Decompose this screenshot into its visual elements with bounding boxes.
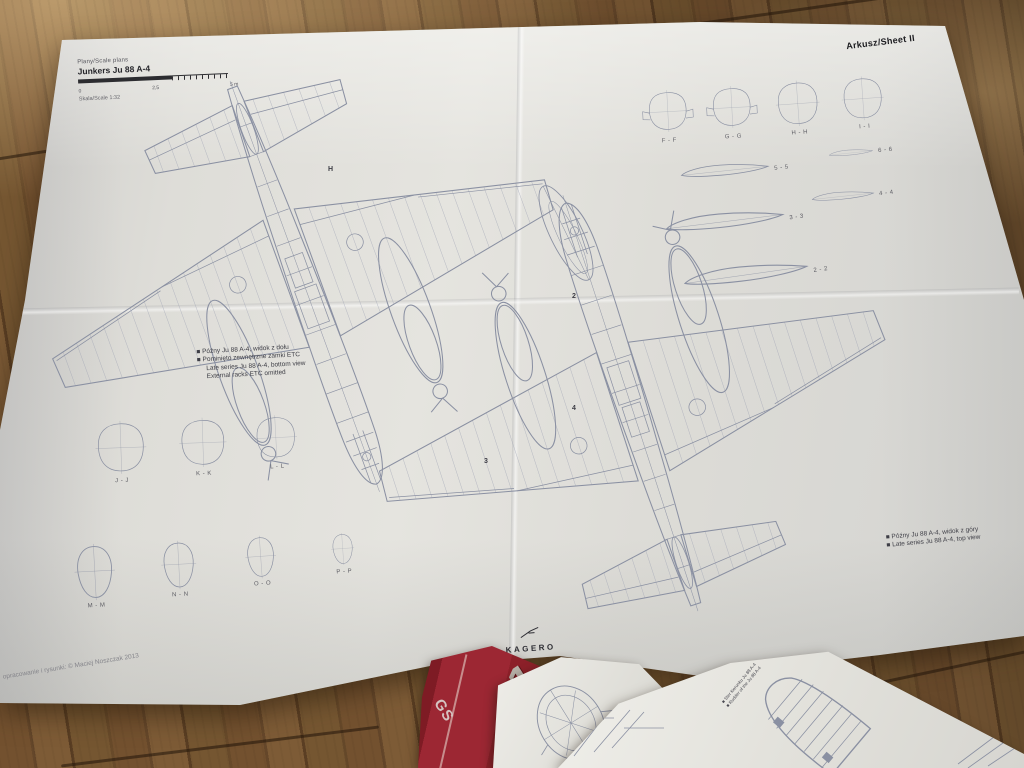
cross-section-f: F - F (639, 85, 698, 146)
cross-section-l: L - L (251, 411, 302, 471)
copyright-line: opracowanie i rysunki: © Maciej Noszczak… (2, 652, 139, 680)
cross-section-j: J - J (91, 417, 151, 485)
sheet-number-label: Arkusz/Sheet II (846, 33, 916, 51)
cross-section-o: O - O (238, 534, 284, 589)
section-marker-2: 2 (572, 293, 576, 300)
book-spine-text: GS (430, 696, 457, 725)
rudder-drawing (745, 655, 878, 768)
cross-section-h: H - H (770, 76, 826, 137)
cross-section-m: M - M (66, 542, 123, 611)
photo-scene: Plany/Scale plans Junkers Ju 88 A-4 0 2,… (0, 0, 1024, 768)
dragonfly-icon (516, 626, 543, 640)
drawing-fragment-lines (564, 668, 684, 758)
cross-section-i: I - I (836, 72, 890, 131)
fin-profile-drawing (516, 168, 616, 298)
cross-section-n: N - N (154, 539, 205, 599)
folded-sheet-right: ■ Ster kierunku Ju 88 A-4 ■ Rudder of th… (558, 628, 1024, 768)
section-marker-4: 4 (572, 405, 576, 412)
airfoil-6: 6 - 6 (829, 143, 893, 160)
section-marker-3: 3 (484, 458, 488, 465)
drawing-fragment-right (958, 728, 1024, 768)
cross-section-k: K - K (175, 414, 231, 478)
section-marker-h: H (328, 166, 333, 173)
cross-section-g: G - G (703, 81, 762, 142)
cross-section-p: P - P (325, 530, 362, 576)
folded-sheet-label: Ju 88 A-4 (529, 657, 550, 672)
